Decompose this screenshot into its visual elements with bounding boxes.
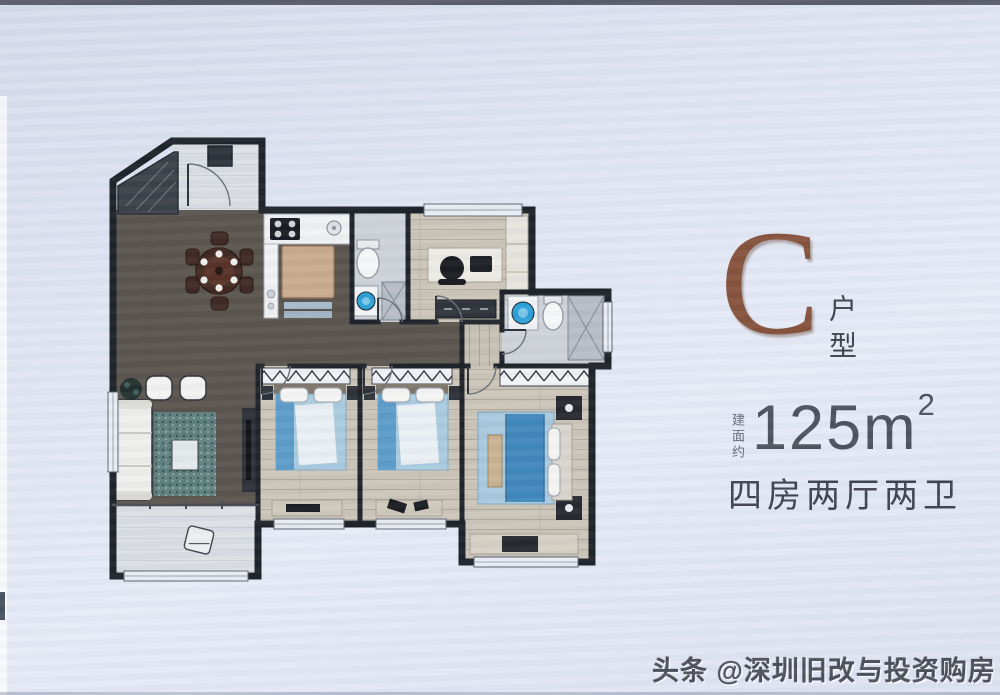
office-chair-icon xyxy=(440,256,464,280)
watermark: 头条 @深圳旧改与投资购房 xyxy=(652,649,996,688)
pillow-icon xyxy=(280,388,308,402)
balcony-chair-icon xyxy=(183,525,214,555)
stove-icon xyxy=(270,218,300,240)
bed-bench-icon xyxy=(488,435,502,487)
pillow-icon xyxy=(548,428,560,460)
toilet-icon xyxy=(543,302,563,330)
bar-stool-icon xyxy=(284,311,332,318)
unit-area-value: 125m xyxy=(752,397,918,460)
coffee-table-icon xyxy=(172,440,198,470)
tv-icon xyxy=(246,420,251,480)
pillow-icon xyxy=(382,388,410,402)
master-closet-floor xyxy=(462,322,502,366)
nightstand-icon xyxy=(347,386,358,400)
sofa-icon xyxy=(114,400,152,500)
tv-icon xyxy=(502,536,538,552)
unit-area-exponent: 2 xyxy=(918,389,935,420)
wardrobe-icon xyxy=(372,368,452,384)
bed-icon xyxy=(376,384,448,470)
balcony xyxy=(183,525,214,555)
bed-icon xyxy=(478,412,572,504)
nightstand-icon xyxy=(449,386,460,400)
toilet-icon xyxy=(357,248,379,278)
laptop-icon xyxy=(470,256,492,272)
bed-icon xyxy=(274,384,346,470)
pillow-icon xyxy=(314,388,342,402)
kitchen-island-icon xyxy=(282,246,334,298)
wardrobe-icon xyxy=(500,368,590,386)
unit-area: 建面约 125m 2 xyxy=(728,397,935,461)
unit-type-letter: C xyxy=(720,208,820,358)
unit-area-prefix: 建面约 xyxy=(728,413,747,461)
bookcase-icon xyxy=(506,216,528,300)
photo-background: C 户型 建面约 125m 2 四房两厅两卫 头条 @深圳旧改与投资购房 xyxy=(0,0,1000,695)
entry-closet-icon xyxy=(208,146,232,166)
armchair-icon xyxy=(146,376,172,400)
unit-type-label: 户型 xyxy=(821,294,861,368)
armchair-icon xyxy=(180,376,206,400)
pillow-icon xyxy=(416,388,444,402)
tv-icon xyxy=(286,504,320,512)
plant-icon xyxy=(120,378,142,400)
pillow-icon xyxy=(548,464,560,496)
wardrobe-icon xyxy=(262,368,350,384)
unit-layout-label: 四房两厅两卫 xyxy=(728,468,962,517)
dresser-icon xyxy=(376,500,442,516)
bar-stool-icon xyxy=(284,302,332,309)
